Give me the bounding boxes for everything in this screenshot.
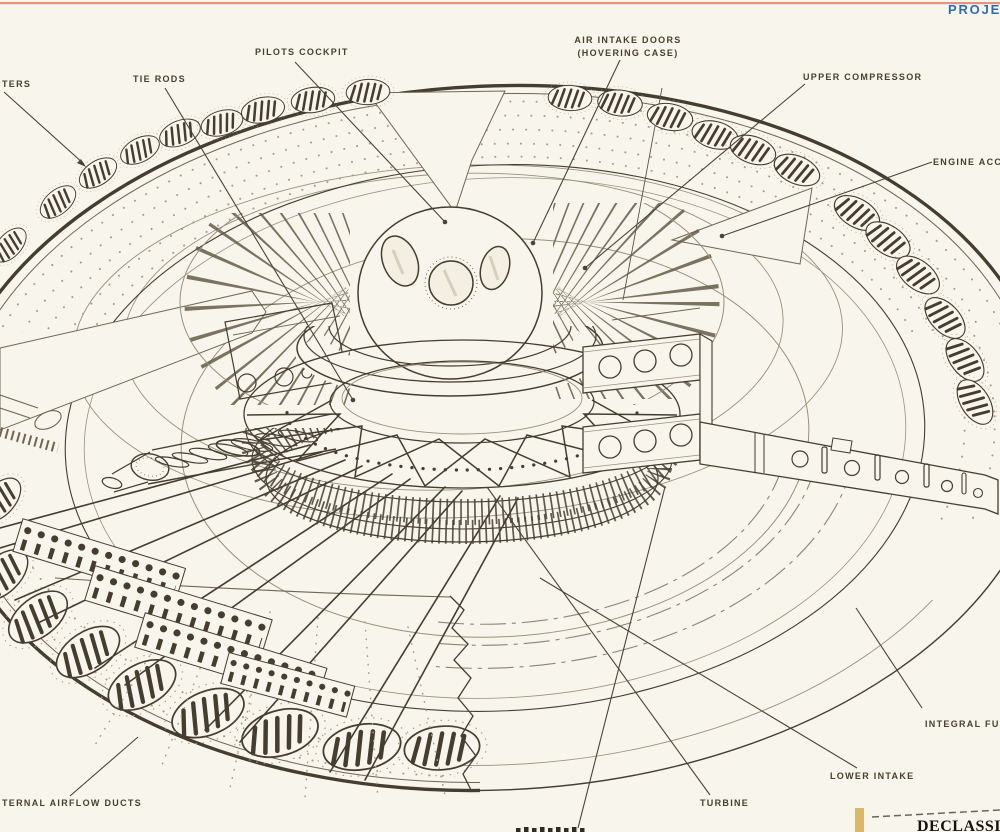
callout-label-turbine: TURBINE xyxy=(700,798,749,808)
tape-mark xyxy=(855,808,864,832)
paper-background xyxy=(0,0,1000,832)
cutaway-diagram: TERS TIE RODS PILOTS COCKPIT AIR INTAKE … xyxy=(0,0,1000,832)
declassified-text-fragment: DECLASSIFIE xyxy=(917,818,1000,832)
callout-label-air-intake-doors: AIR INTAKE DOORS xyxy=(574,35,681,45)
top-rule xyxy=(0,2,1000,4)
callout-label-tie-rods: TIE RODS xyxy=(133,74,186,84)
callout-label-upper-compressor: UPPER COMPRESSOR xyxy=(803,72,922,82)
callout-label-lower-intake: LOWER INTAKE xyxy=(830,771,914,781)
callout-label-integral-fuel: INTEGRAL FUEL xyxy=(925,719,1000,729)
callout-label-shutters: TERS xyxy=(2,79,31,89)
callout-label-airflow-ducts: TERNAL AIRFLOW DUCTS xyxy=(2,798,142,808)
blueprint-page: TERS TIE RODS PILOTS COCKPIT AIR INTAKE … xyxy=(0,0,1000,832)
callout-label-engine-accessories: ENGINE ACCE xyxy=(933,157,1000,167)
callout-label-pilots-cockpit: PILOTS COCKPIT xyxy=(255,47,349,57)
project-title-fragment: PROJEC xyxy=(948,2,1000,17)
callout-label-hovering-case: (HOVERING CASE) xyxy=(577,48,678,58)
